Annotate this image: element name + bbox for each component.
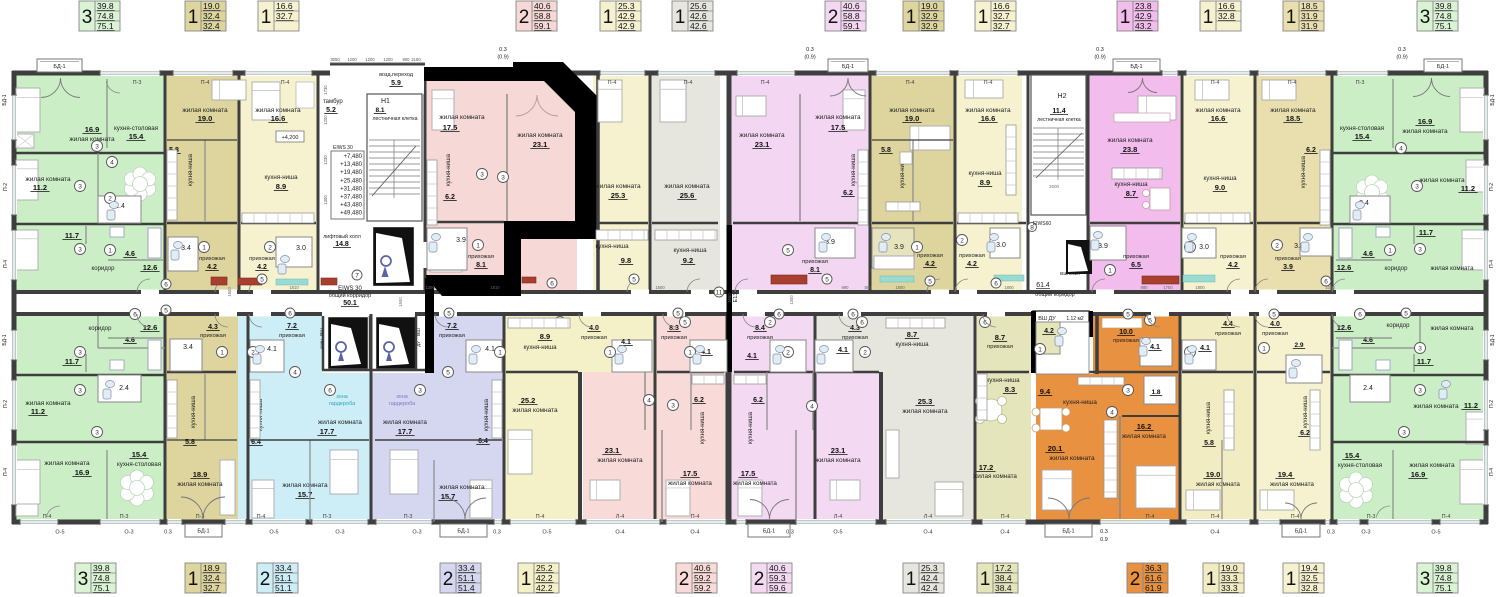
svg-text:6: 6 (550, 280, 554, 287)
svg-text:39.8: 39.8 (1435, 1, 1452, 11)
svg-text:П-4: П-4 (1146, 514, 1155, 520)
svg-text:32.5: 32.5 (1301, 573, 1318, 583)
svg-text:0.3: 0.3 (1100, 529, 1108, 535)
svg-text:4: 4 (647, 397, 651, 404)
svg-text:П-4: П-4 (1001, 514, 1010, 520)
svg-text:10.0: 10.0 (1119, 329, 1133, 336)
svg-text:жилая комната: жилая комната (1107, 137, 1153, 144)
svg-text:кухня-ниша: кухня-ниша (895, 341, 929, 348)
svg-text:16.6: 16.6 (1218, 1, 1235, 11)
svg-text:прихожая: прихожая (802, 259, 828, 265)
svg-text:51.1: 51.1 (275, 573, 292, 583)
svg-text:75.1: 75.1 (1435, 21, 1452, 31)
svg-text:16.6: 16.6 (993, 1, 1010, 11)
svg-text:25.2: 25.2 (536, 563, 553, 573)
svg-text:5: 5 (1272, 311, 1276, 318)
svg-text:жилая комната: жилая комната (255, 107, 301, 114)
svg-text:2: 2 (754, 569, 765, 590)
svg-text:жилая комната: жилая комната (595, 183, 641, 190)
svg-text:8.7: 8.7 (995, 333, 1005, 342)
svg-text:П-4: П-4 (1291, 514, 1300, 520)
svg-text:8.4: 8.4 (755, 325, 765, 332)
svg-text:1: 1 (1206, 569, 1217, 590)
svg-text:0.3: 0.3 (493, 530, 501, 536)
svg-text:11.2: 11.2 (33, 183, 47, 192)
svg-text:8.1: 8.1 (476, 262, 486, 269)
svg-text:19.4: 19.4 (1278, 470, 1293, 479)
svg-text:5.2: 5.2 (326, 107, 336, 114)
svg-text:4.3: 4.3 (208, 324, 218, 331)
svg-text:О-4: О-4 (1000, 530, 1009, 536)
svg-text:Л-4: Л-4 (616, 514, 625, 520)
svg-text:1500: 1500 (655, 285, 665, 290)
svg-text:42.4: 42.4 (921, 573, 938, 583)
svg-text:8.9: 8.9 (276, 182, 286, 191)
svg-text:П-4: П-4 (1211, 514, 1220, 520)
svg-text:EIWS 30: EIWS 30 (333, 145, 353, 151)
svg-text:+49,480: +49,480 (340, 211, 363, 217)
svg-text:кухня-ниша: кухня-ниша (484, 398, 490, 431)
svg-text:11.2: 11.2 (31, 407, 45, 416)
svg-text:О-4: О-4 (615, 530, 624, 536)
svg-text:61.4: 61.4 (1036, 282, 1050, 289)
svg-text:жилая комната: жилая комната (965, 107, 1011, 114)
svg-text:жилая комната: жилая комната (889, 107, 935, 114)
svg-text:1: 1 (188, 7, 199, 28)
svg-text:жилая комната: жилая комната (318, 419, 362, 426)
svg-text:+4,200: +4,200 (282, 135, 299, 141)
svg-text:1200: 1200 (365, 57, 375, 62)
svg-text:кухня-ниша: кухня-ниша (1206, 401, 1212, 434)
svg-text:П-4: П-4 (281, 80, 290, 86)
svg-text:жилая комната: жилая комната (733, 480, 777, 487)
svg-text:П-4: П-4 (761, 80, 770, 86)
svg-text:6: 6 (860, 319, 864, 326)
svg-text:8.7: 8.7 (907, 330, 917, 339)
svg-text:1: 1 (906, 569, 917, 590)
svg-text:кухня-столовая: кухня-столовая (1338, 462, 1382, 469)
svg-text:0.3: 0.3 (499, 47, 507, 53)
svg-text:жилая комната: жилая комната (1122, 433, 1166, 440)
svg-text:П-3: П-3 (120, 514, 129, 520)
svg-text:8.1: 8.1 (375, 107, 384, 114)
svg-text:1650: 1650 (727, 293, 732, 303)
svg-text:H1: H1 (381, 98, 390, 105)
svg-text:18.9: 18.9 (193, 470, 208, 479)
svg-text:2: 2 (1130, 569, 1141, 590)
svg-text:7: 7 (355, 272, 359, 279)
svg-text:1: 1 (1038, 346, 1042, 353)
svg-text:5: 5 (1404, 310, 1408, 317)
svg-text:32.9: 32.9 (921, 11, 938, 21)
svg-text:ДУ: ДУ (416, 341, 421, 347)
svg-text:850: 850 (865, 285, 873, 290)
svg-text:5: 5 (786, 247, 790, 254)
svg-text:8.3: 8.3 (1005, 385, 1015, 394)
svg-text:О-3: О-3 (1361, 530, 1370, 536)
svg-text:О-3: О-3 (412, 530, 421, 536)
svg-text:3: 3 (82, 7, 93, 28)
svg-text:4.6: 4.6 (1363, 251, 1373, 258)
svg-text:3: 3 (1402, 429, 1406, 436)
svg-text:+37,480: +37,480 (340, 195, 363, 201)
svg-text:12.6: 12.6 (1337, 323, 1352, 332)
svg-text:коридор: коридор (89, 326, 113, 332)
svg-text:БД-1: БД-1 (1130, 64, 1142, 70)
svg-text:43.2: 43.2 (1135, 21, 1152, 31)
svg-text:38.4: 38.4 (995, 573, 1012, 583)
svg-text:8.9: 8.9 (980, 178, 990, 187)
svg-text:3: 3 (1126, 387, 1130, 394)
svg-text:жилая комната: жилая комната (1413, 403, 1459, 410)
svg-text:31.9: 31.9 (1301, 11, 1318, 21)
svg-text:23.8: 23.8 (1135, 1, 1152, 11)
svg-text:33.3: 33.3 (1221, 573, 1238, 583)
svg-text:1300: 1300 (425, 285, 435, 290)
svg-text:5.8: 5.8 (881, 147, 891, 154)
svg-text:(0.9): (0.9) (1396, 55, 1407, 61)
svg-text:кухня-ниша: кухня-ниша (1114, 181, 1148, 188)
svg-text:5: 5 (825, 276, 829, 283)
svg-text:2.4: 2.4 (1363, 385, 1373, 392)
svg-text:+7,480: +7,480 (343, 154, 362, 160)
svg-text:прихожая: прихожая (1113, 338, 1139, 344)
svg-text:1800: 1800 (895, 285, 905, 290)
svg-text:О-3: О-3 (124, 530, 133, 536)
svg-text:прихожая: прихожая (279, 333, 305, 339)
svg-text:жилая комната: жилая комната (1270, 107, 1316, 114)
svg-text:17.2: 17.2 (979, 463, 994, 472)
svg-text:комн: комн (319, 339, 324, 349)
svg-text:0.3: 0.3 (1398, 47, 1406, 53)
svg-text:2: 2 (108, 195, 112, 202)
svg-text:0.3: 0.3 (1327, 530, 1335, 536)
svg-text:33.3: 33.3 (1221, 583, 1238, 593)
svg-text:32.7: 32.7 (203, 583, 220, 593)
svg-text:990: 990 (842, 285, 850, 290)
svg-text:жилая комната: жилая комната (1430, 265, 1474, 272)
svg-text:H2: H2 (1058, 93, 1067, 100)
svg-text:EIWS 30: EIWS 30 (338, 286, 362, 292)
svg-text:3.9: 3.9 (1283, 264, 1293, 271)
svg-text:15.4: 15.4 (1345, 451, 1360, 460)
svg-text:8.1: 8.1 (810, 267, 820, 274)
svg-text:О-4: О-4 (923, 530, 932, 536)
svg-text:4.1: 4.1 (838, 347, 848, 354)
svg-text:2: 2 (679, 569, 690, 590)
svg-text:40.6: 40.6 (534, 1, 551, 11)
svg-text:П-4: П-4 (257, 514, 266, 520)
svg-text:15.4: 15.4 (132, 450, 147, 459)
svg-text:75.1: 75.1 (93, 583, 110, 593)
svg-text:6.2: 6.2 (753, 397, 763, 404)
svg-text:61.9: 61.9 (1145, 583, 1162, 593)
svg-text:6: 6 (328, 387, 332, 394)
svg-text:прихожая: прихожая (1215, 331, 1241, 337)
svg-text:прихожая: прихожая (468, 254, 494, 260)
svg-text:61.6: 61.6 (1145, 573, 1162, 583)
svg-text:9.2: 9.2 (683, 256, 693, 265)
svg-text:17.2: 17.2 (995, 563, 1012, 573)
svg-text:2: 2 (443, 569, 454, 590)
svg-text:П-4: П-4 (906, 80, 915, 86)
svg-text:3: 3 (1418, 345, 1422, 352)
svg-text:16.6: 16.6 (271, 114, 286, 123)
svg-text:О-5: О-5 (1431, 530, 1440, 536)
svg-text:1: 1 (498, 349, 502, 356)
svg-text:32.4: 32.4 (203, 21, 220, 31)
svg-text:23.1: 23.1 (533, 140, 548, 149)
svg-text:общий корридор: общий корридор (329, 292, 371, 299)
svg-text:П-3: П-3 (1367, 514, 1376, 520)
svg-text:32.7: 32.7 (276, 11, 293, 21)
svg-text:25.2: 25.2 (521, 396, 536, 405)
svg-text:2: 2 (960, 237, 964, 244)
svg-text:жилая комната: жилая комната (973, 473, 1017, 480)
svg-text:БД-1: БД-1 (2, 94, 8, 105)
svg-text:прихожая: прихожая (199, 256, 225, 262)
svg-text:17.5: 17.5 (683, 469, 698, 478)
svg-text:59.1: 59.1 (534, 21, 551, 31)
svg-text:П-4: П-4 (3, 260, 9, 268)
svg-text:БД-1: БД-1 (842, 64, 854, 70)
svg-text:1: 1 (202, 244, 206, 251)
svg-text:кухня-ниша: кухня-ниша (188, 153, 194, 186)
svg-text:18.9: 18.9 (203, 563, 220, 573)
svg-text:(0.9): (0.9) (497, 55, 508, 61)
svg-text:74.8: 74.8 (93, 573, 110, 583)
svg-text:3: 3 (78, 349, 82, 356)
svg-text:2: 2 (768, 319, 772, 326)
svg-text:6.5: 6.5 (1131, 262, 1141, 269)
svg-text:жилая комната: жилая комната (1270, 481, 1314, 488)
svg-text:19.0: 19.0 (921, 1, 938, 11)
svg-text:38.4: 38.4 (995, 583, 1012, 593)
svg-text:кухня-ниша: кухня-ниша (191, 395, 197, 428)
svg-text:БД-1: БД-1 (457, 529, 469, 535)
svg-text:0.9: 0.9 (1100, 537, 1108, 543)
svg-text:2: 2 (1275, 242, 1279, 249)
svg-text:кухня-ниша: кухня-ниша (968, 170, 1002, 177)
svg-text:БД-1: БД-1 (2, 334, 8, 345)
svg-text:25.3: 25.3 (618, 1, 635, 11)
svg-text:коридор: коридор (92, 266, 116, 272)
svg-text:4.1: 4.1 (1200, 345, 1210, 352)
svg-text:жилая комната: жилая комната (597, 457, 643, 464)
svg-text:П-4: П-4 (3, 468, 9, 476)
svg-text:6: 6 (851, 311, 855, 318)
svg-text:БД-1: БД-1 (1490, 334, 1496, 345)
svg-text:БД-1: БД-1 (53, 64, 65, 70)
svg-text:3: 3 (501, 174, 505, 181)
svg-text:2: 2 (519, 7, 530, 28)
svg-text:2: 2 (260, 569, 271, 590)
svg-text:кухня-ниша: кухня-ниша (595, 243, 629, 250)
svg-text:6: 6 (777, 311, 781, 318)
svg-text:зона: зона (336, 394, 349, 400)
svg-text:12.6: 12.6 (143, 263, 158, 272)
svg-text:жилая комната: жилая комната (1419, 177, 1465, 184)
svg-text:2.9: 2.9 (1294, 342, 1303, 349)
svg-text:40.6: 40.6 (694, 563, 711, 573)
svg-text:5: 5 (1126, 311, 1130, 318)
svg-text:32.7: 32.7 (993, 21, 1010, 31)
svg-text:прихожая: прихожая (581, 335, 607, 341)
svg-text:1: 1 (603, 7, 614, 28)
svg-text:59.2: 59.2 (694, 583, 711, 593)
svg-text:1300: 1300 (323, 195, 328, 205)
svg-text:3.9: 3.9 (894, 244, 904, 251)
svg-text:жилая комната: жилая комната (25, 400, 71, 407)
svg-text:прихожая: прихожая (747, 335, 773, 341)
svg-text:7.2: 7.2 (447, 323, 457, 330)
svg-text:8.9: 8.9 (540, 332, 550, 341)
svg-text:EIWS60: EIWS60 (1033, 221, 1052, 227)
svg-text:11: 11 (716, 289, 723, 296)
svg-text:11.2: 11.2 (1464, 401, 1478, 410)
svg-text:прихожая: прихожая (1220, 254, 1246, 260)
svg-text:коридор: коридор (1385, 266, 1409, 272)
svg-text:коридор: коридор (1387, 323, 1411, 329)
svg-text:20.1: 20.1 (1048, 444, 1063, 453)
svg-text:16.2: 16.2 (1137, 422, 1152, 431)
svg-text:3: 3 (1420, 569, 1431, 590)
svg-text:возд.переход: возд.переход (379, 72, 414, 78)
svg-text:3: 3 (1420, 7, 1431, 28)
svg-text:1200: 1200 (323, 115, 328, 125)
svg-text:5: 5 (164, 307, 168, 314)
svg-text:прихожая: прихожая (249, 256, 275, 262)
svg-text:3.9: 3.9 (456, 237, 466, 244)
svg-text:6.2: 6.2 (843, 190, 853, 197)
svg-text:общий коридор: общий коридор (1035, 291, 1074, 298)
svg-text:31.9: 31.9 (1301, 21, 1318, 31)
svg-text:3: 3 (1415, 183, 1419, 190)
svg-text:1: 1 (978, 7, 989, 28)
svg-text:6: 6 (288, 310, 292, 317)
svg-text:4.2: 4.2 (257, 264, 267, 271)
svg-text:4: 4 (293, 369, 297, 376)
svg-text:980: 980 (1141, 285, 1149, 290)
svg-text:жилая комната: жилая комната (439, 114, 485, 121)
svg-text:33.4: 33.4 (275, 563, 292, 573)
svg-text:32.4: 32.4 (203, 11, 220, 21)
svg-text:П-4: П-4 (1489, 468, 1495, 476)
svg-text:жилая комната: жилая комната (383, 419, 427, 426)
svg-text:5: 5 (446, 369, 450, 376)
svg-text:тамбур: тамбур (323, 99, 343, 105)
svg-text:40.6: 40.6 (769, 563, 786, 573)
svg-text:П-4: П-4 (536, 514, 545, 520)
svg-text:4.6: 4.6 (125, 251, 135, 258)
svg-text:4.1: 4.1 (1150, 344, 1160, 351)
svg-text:1: 1 (1286, 7, 1297, 28)
svg-text:1: 1 (915, 244, 919, 251)
svg-text:6.4: 6.4 (478, 438, 488, 445)
svg-text:42.2: 42.2 (536, 573, 553, 583)
svg-text:17.5: 17.5 (443, 123, 458, 132)
svg-text:4.1: 4.1 (267, 346, 277, 353)
svg-text:5.8: 5.8 (1204, 440, 1214, 447)
svg-text:прихожая: прихожая (1262, 331, 1288, 337)
svg-text:П-4: П-4 (1288, 80, 1297, 86)
svg-text:5: 5 (447, 310, 451, 317)
svg-text:кухня-ниша: кухня-ниша (748, 411, 754, 444)
svg-text:Л-4: Л-4 (834, 514, 843, 520)
svg-text:18.5: 18.5 (1286, 114, 1301, 123)
svg-text:жилая комната: жилая комната (1049, 455, 1095, 462)
svg-text:42.9: 42.9 (618, 21, 635, 31)
svg-text:жилая комната: жилая комната (1409, 462, 1455, 469)
svg-text:гардероба: гардероба (329, 401, 356, 407)
svg-text:1: 1 (1286, 569, 1297, 590)
svg-text:6.2: 6.2 (445, 194, 455, 201)
svg-text:4: 4 (810, 403, 814, 410)
svg-text:3: 3 (1418, 246, 1422, 253)
svg-text:кухня-ниша: кухня-ниша (1301, 155, 1307, 188)
svg-text:гардероба: гардероба (389, 401, 416, 407)
svg-text:П-4: П-4 (691, 514, 700, 520)
svg-text:БД-1: БД-1 (1062, 529, 1074, 535)
svg-text:3: 3 (78, 569, 89, 590)
svg-text:П-3: П-3 (404, 514, 413, 520)
svg-text:5.9: 5.9 (391, 80, 401, 87)
svg-text:П-4: П-4 (984, 80, 993, 86)
svg-text:1: 1 (108, 247, 112, 254)
svg-text:прихожая: прихожая (1123, 254, 1149, 260)
svg-text:лестничная клетка: лестничная клетка (372, 116, 417, 122)
svg-text:О-5: О-5 (55, 530, 64, 536)
svg-text:19.0: 19.0 (905, 114, 920, 123)
svg-text:25.3: 25.3 (918, 397, 933, 406)
svg-text:32.8: 32.8 (1218, 11, 1235, 21)
svg-text:1: 1 (188, 569, 199, 590)
svg-text:18.5: 18.5 (1301, 1, 1318, 11)
svg-text:7.2: 7.2 (287, 323, 297, 330)
svg-text:П-3: П-3 (133, 80, 142, 86)
svg-text:жилая комната: жилая комната (664, 183, 710, 190)
svg-text:1: 1 (1388, 247, 1392, 254)
svg-text:+25,480: +25,480 (340, 178, 363, 184)
svg-text:3: 3 (78, 183, 82, 190)
svg-text:кухня-ниша: кухня-ниша (673, 247, 707, 254)
svg-text:19.0: 19.0 (203, 1, 220, 11)
svg-text:1: 1 (521, 569, 532, 590)
svg-text:12.6: 12.6 (143, 323, 158, 332)
svg-text:П-4: П-4 (684, 80, 693, 86)
svg-text:17.7: 17.7 (320, 427, 335, 436)
svg-text:2600: 2600 (1049, 184, 1060, 189)
svg-text:25.3: 25.3 (611, 191, 626, 200)
svg-text:1800: 1800 (1195, 285, 1205, 290)
svg-text:51.1: 51.1 (275, 583, 292, 593)
svg-text:1900: 1900 (227, 287, 232, 297)
svg-text:4.4: 4.4 (1223, 321, 1233, 328)
svg-text:17.7: 17.7 (398, 427, 413, 436)
svg-text:2: 2 (863, 349, 867, 356)
svg-text:6: 6 (994, 280, 998, 287)
svg-text:лестничная клетка: лестничная клетка (1037, 117, 1081, 123)
svg-text:прихожая: прихожая (959, 253, 985, 259)
svg-text:16.9: 16.9 (1418, 117, 1433, 126)
svg-text:19.0: 19.0 (1221, 563, 1238, 573)
svg-text:5: 5 (676, 310, 680, 317)
svg-text:25.6: 25.6 (690, 1, 707, 11)
svg-text:9.0: 9.0 (1215, 183, 1225, 192)
svg-text:2: 2 (786, 349, 790, 356)
svg-text:39.8: 39.8 (93, 563, 110, 573)
svg-text:жилая комната: жилая комната (25, 176, 71, 183)
